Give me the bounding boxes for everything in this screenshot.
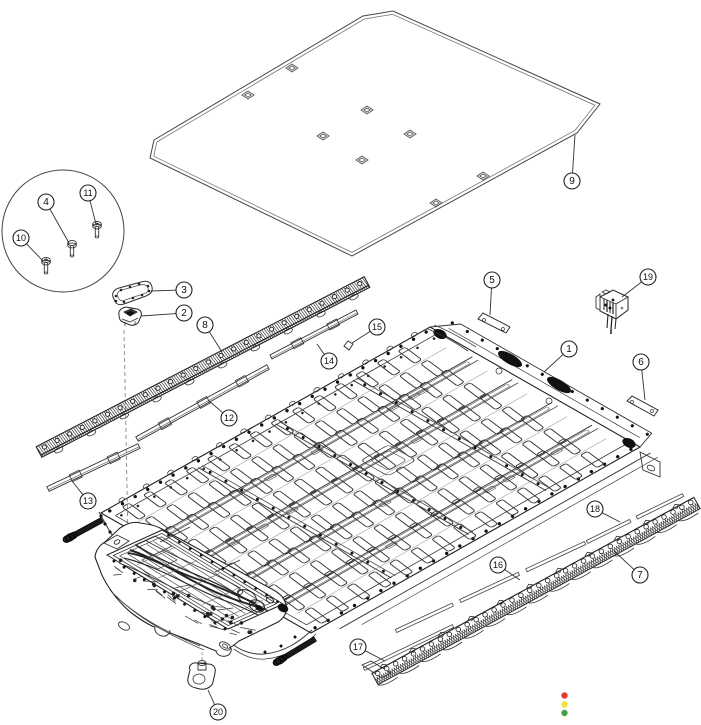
svg-text:5: 5 bbox=[489, 275, 495, 286]
svg-text:2: 2 bbox=[181, 308, 187, 319]
svg-text:1: 1 bbox=[566, 344, 572, 355]
svg-text:7: 7 bbox=[637, 570, 643, 581]
svg-text:4: 4 bbox=[43, 197, 49, 208]
svg-text:17: 17 bbox=[353, 642, 363, 652]
svg-text:10: 10 bbox=[16, 233, 26, 243]
svg-text:15: 15 bbox=[372, 322, 382, 332]
svg-text:19: 19 bbox=[643, 272, 653, 282]
svg-text:11: 11 bbox=[83, 188, 92, 198]
svg-text:18: 18 bbox=[590, 504, 600, 514]
svg-text:16: 16 bbox=[493, 560, 503, 570]
svg-text:13: 13 bbox=[83, 496, 93, 506]
svg-text:20: 20 bbox=[213, 707, 223, 717]
svg-text:3: 3 bbox=[181, 285, 187, 296]
svg-text:14: 14 bbox=[324, 356, 334, 366]
svg-text:8: 8 bbox=[202, 320, 208, 331]
svg-text:12: 12 bbox=[224, 413, 234, 423]
svg-text:9: 9 bbox=[569, 176, 575, 187]
svg-text:6: 6 bbox=[638, 357, 644, 368]
